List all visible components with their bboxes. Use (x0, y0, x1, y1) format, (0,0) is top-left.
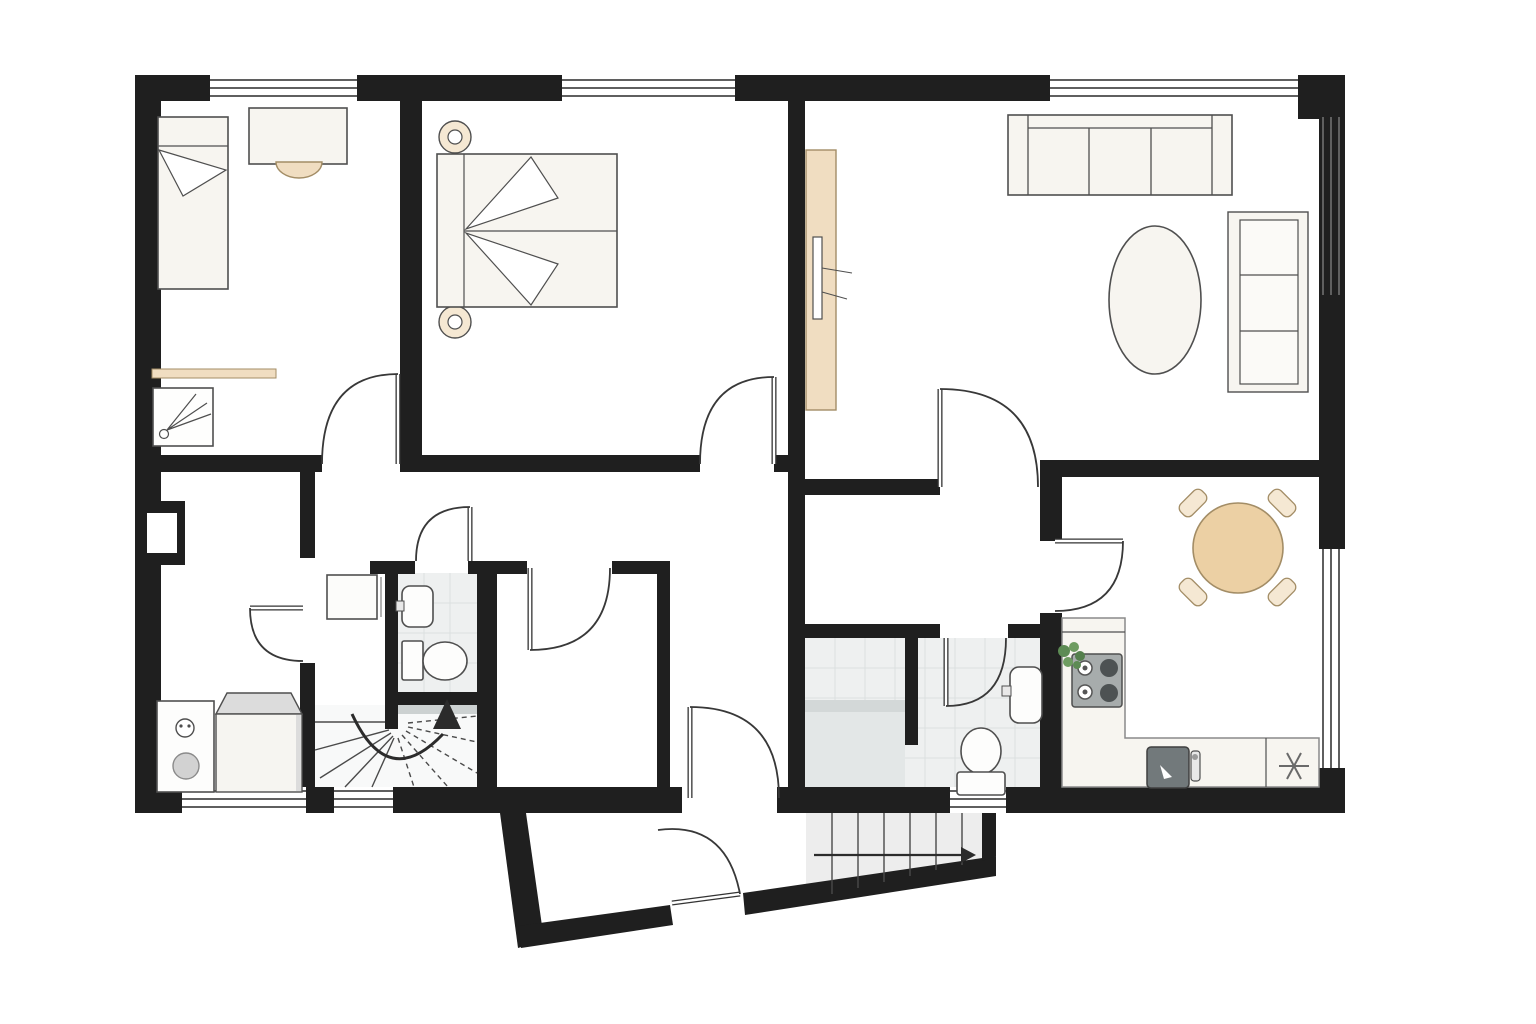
wc-basin (402, 586, 433, 627)
washing-machine-dot-a (179, 724, 182, 727)
wall-hall-low-b (468, 561, 527, 574)
door-wc-arc (416, 507, 470, 561)
stove-burner-1-dot (1083, 666, 1088, 671)
wall-exterior-stairs-right (982, 813, 996, 861)
wall-below-bed1 (161, 455, 322, 472)
wall-bottom-b (306, 787, 334, 813)
door-storage-arc (530, 568, 610, 650)
washing-machine-dot-b (187, 724, 190, 727)
plant-leaf-1 (1058, 645, 1070, 657)
wall-bottom-c (393, 787, 512, 813)
wall-wc-left (385, 561, 398, 705)
window-stairs (334, 791, 393, 807)
plant-leaf-5 (1073, 661, 1081, 669)
window-living (1050, 80, 1298, 96)
wall-hall-vertical (788, 101, 805, 787)
door-living-arc (940, 389, 1038, 487)
wall-storage-right (657, 561, 670, 787)
wall-stair-stub (385, 705, 398, 729)
plant-leaf-3 (1075, 651, 1085, 661)
window-dining-right (1323, 549, 1339, 768)
stove-burner-2-dot (1083, 690, 1088, 695)
wall-utility-right-upper (300, 470, 315, 558)
stair-landing-band (398, 705, 477, 714)
sofa (1008, 115, 1232, 195)
appliance-box-lid (216, 693, 302, 714)
tv (813, 237, 822, 319)
desk (249, 108, 347, 164)
window-bedroom1 (210, 80, 357, 96)
plant-leaf-2 (1069, 642, 1079, 652)
wall-top-c (735, 75, 1050, 101)
plant-leaf-4 (1063, 657, 1073, 667)
wall-bottom-d (512, 787, 682, 813)
lobby-cabinet (327, 575, 377, 619)
appliance-box-body (216, 714, 302, 792)
dining-chair-nw (1177, 487, 1210, 520)
appliance-box-side-shade (296, 715, 301, 791)
shower-edge-band (805, 700, 905, 712)
bath-tap (1002, 686, 1011, 696)
stove-burner-3 (1100, 659, 1118, 677)
bath-toilet-tank (957, 772, 1005, 795)
door-corridor-arc (690, 707, 779, 798)
door-bedroom1-arc (322, 374, 398, 464)
desk-chair (276, 162, 322, 178)
kitchen-faucet-dot (1192, 754, 1198, 760)
bedside-stool-top-inner (448, 130, 462, 144)
wc-tap (396, 601, 404, 611)
wall-kitchen-left-lower (1040, 613, 1062, 787)
floor-plan (0, 0, 1536, 1024)
kitchen-sink-basin (1147, 747, 1189, 788)
door-front-leaf-core (672, 894, 740, 903)
wall-bath-partition (905, 624, 918, 745)
dining-table (1193, 503, 1283, 593)
wall-kitchen-left-upper (1040, 460, 1062, 541)
coffee-table (1109, 226, 1201, 374)
bedside-stool-bottom-inner (448, 315, 462, 329)
bath-basin (1010, 667, 1042, 723)
wall-bottom-e (777, 787, 803, 813)
wall-bottom-f (803, 787, 950, 813)
dining-chair-sw (1177, 576, 1210, 609)
shelf-unit-inner (1240, 220, 1298, 384)
wc-toilet-bowl (423, 642, 467, 680)
wall-bath-top-jamb (1008, 624, 1040, 638)
door-utility-arc (250, 608, 303, 661)
wall-living-stub (805, 479, 940, 495)
door-front-arc (658, 829, 740, 894)
wall-wc-bottom (385, 692, 477, 705)
window-utility (182, 791, 306, 807)
dining-chair-ne (1266, 487, 1299, 520)
wall-shelf (152, 369, 276, 378)
wall-wc-right (477, 561, 497, 787)
wall-kitchen-top (1048, 460, 1319, 477)
washing-machine-latch (176, 719, 194, 737)
stove-burner-4 (1100, 684, 1118, 702)
wall-vestibule-bottom-a (518, 905, 673, 948)
wall-top-b (357, 75, 562, 101)
single-bed (158, 117, 228, 289)
wc-toilet-tank (402, 641, 423, 680)
wall-right-b (1319, 295, 1345, 549)
wall-below-bed2 (400, 455, 700, 472)
dining-chair-se (1266, 576, 1299, 609)
door-bedroom2-arc (700, 377, 774, 464)
wall-bottom-g (1006, 787, 1345, 813)
wall-bedroom-divider (400, 101, 422, 455)
door-kitchen-arc (1055, 541, 1123, 611)
wall-top-right-corner (1298, 75, 1345, 119)
shower-area (805, 700, 905, 787)
washing-machine-drum (173, 753, 199, 779)
floor-plan-page (0, 0, 1536, 1024)
wall-niche (147, 513, 177, 553)
bath-toilet-bowl (961, 728, 1001, 774)
window-bedroom2 (562, 80, 735, 96)
wall-bath-top (805, 624, 940, 638)
